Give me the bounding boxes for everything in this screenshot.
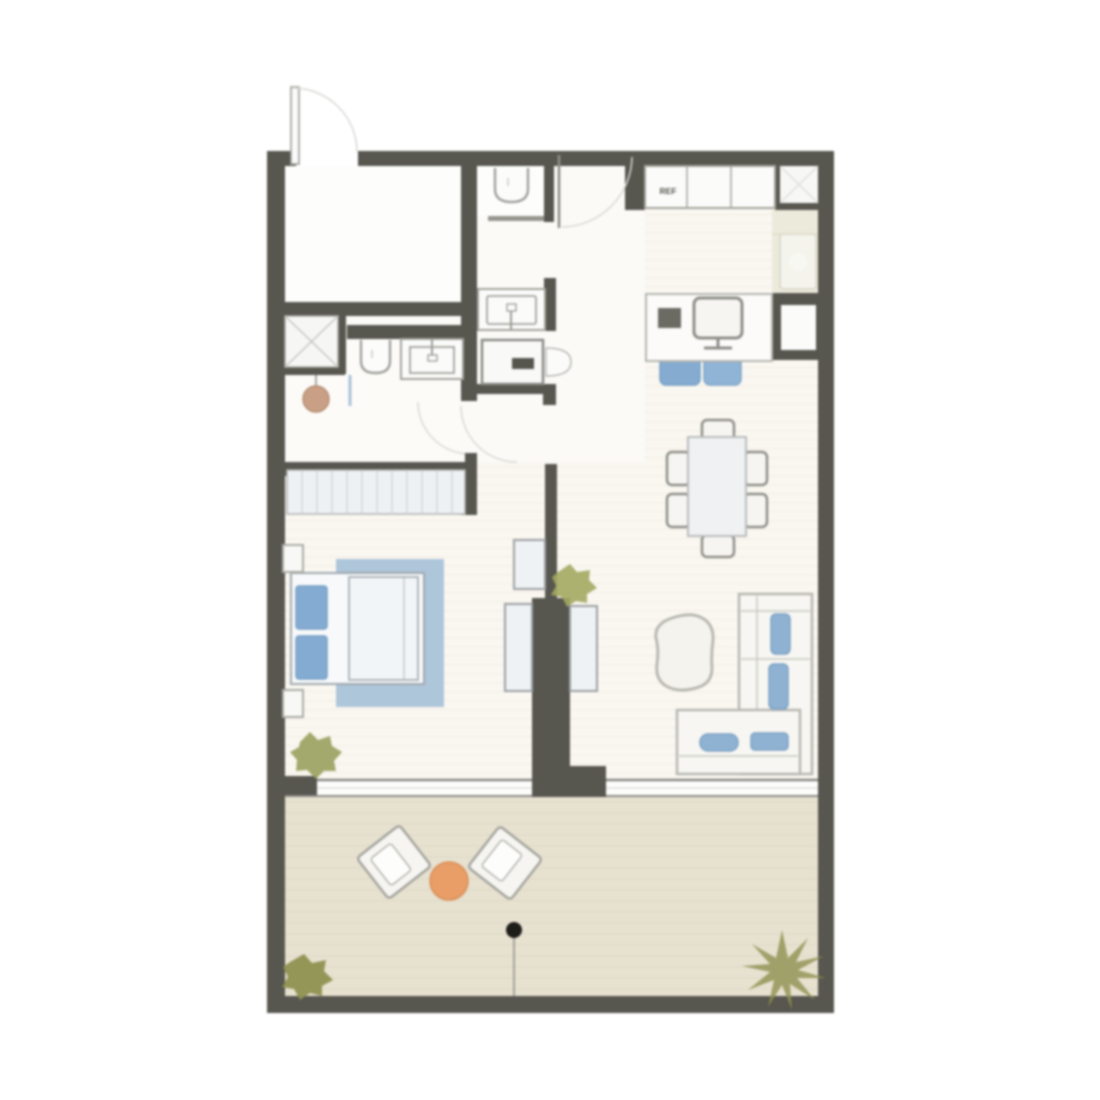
svg-text:REF: REF [660,186,677,196]
